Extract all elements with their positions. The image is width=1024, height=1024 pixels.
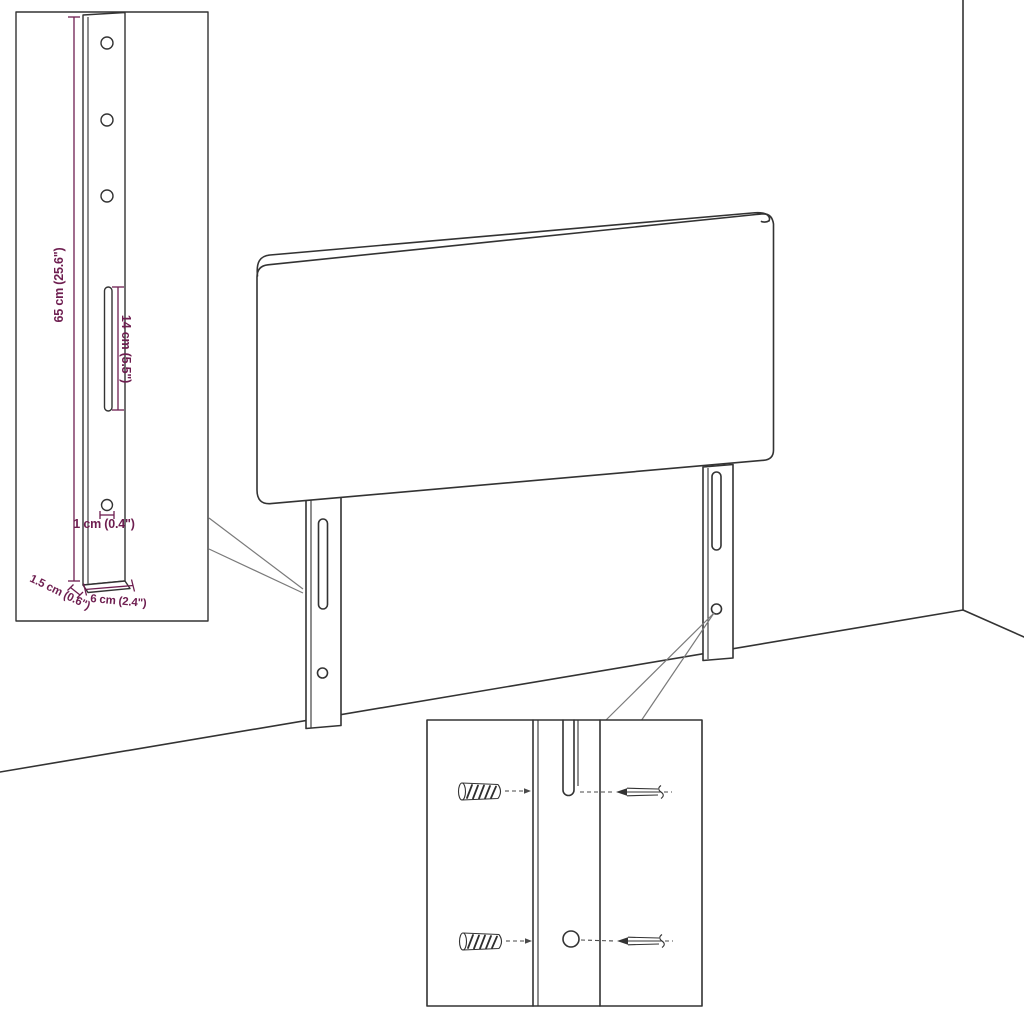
left-mounting-leg: [306, 496, 341, 729]
callout-line: [209, 549, 303, 593]
bracket-drawing: [83, 13, 130, 593]
diagram-canvas: 65 cm (25.6") 14 cm (5.5") 1 cm (0.4") 1…: [0, 0, 1024, 1024]
panel-front-face: [257, 214, 774, 504]
diagram-page: 65 cm (25.6") 14 cm (5.5") 1 cm (0.4") 1…: [0, 0, 1024, 1024]
right-mounting-leg: [703, 465, 733, 661]
dimension-label-hole-diameter: 1 cm (0.4"): [73, 517, 134, 531]
floor-line-right: [963, 610, 1024, 637]
inset-border: [427, 720, 702, 1006]
callout-line: [209, 518, 303, 589]
callout-line: [641, 613, 714, 721]
dimension-label-bracket-height: 65 cm (25.6"): [52, 248, 66, 323]
callout-lines-bracket-inset: [209, 518, 303, 593]
headboard-panel: [257, 213, 774, 504]
dimension-label-slot-length: 14 cm (5.5"): [119, 315, 133, 383]
bracket-detail-inset: 65 cm (25.6") 14 cm (5.5") 1 cm (0.4") 1…: [16, 12, 208, 621]
mounting-hardware-inset: [427, 720, 702, 1006]
